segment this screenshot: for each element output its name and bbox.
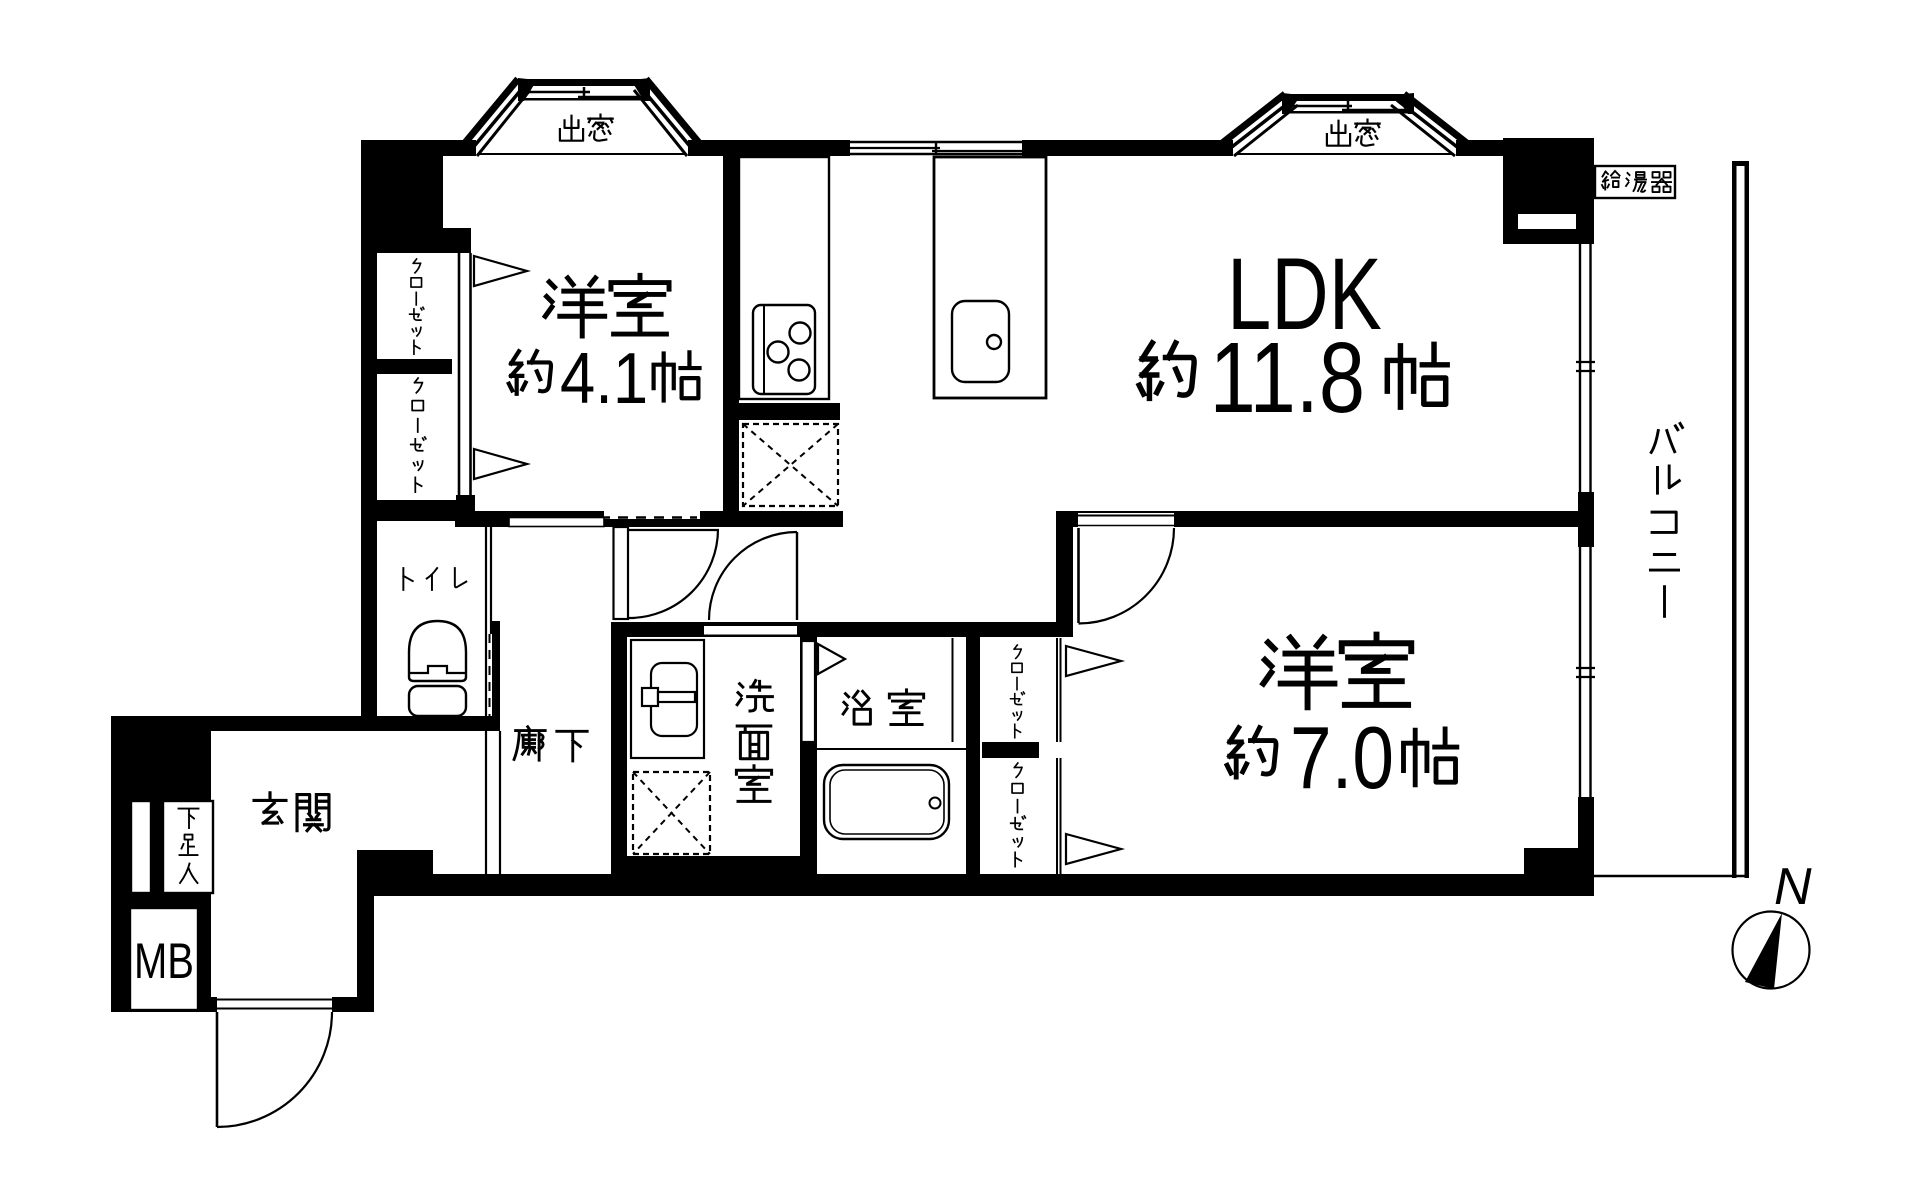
svg-text:MB: MB [134,933,194,989]
svg-text:7.0: 7.0 [1290,709,1394,807]
svg-text:N: N [1774,858,1812,916]
svg-text:4.1: 4.1 [560,339,648,419]
svg-text:11.8: 11.8 [1210,323,1365,434]
